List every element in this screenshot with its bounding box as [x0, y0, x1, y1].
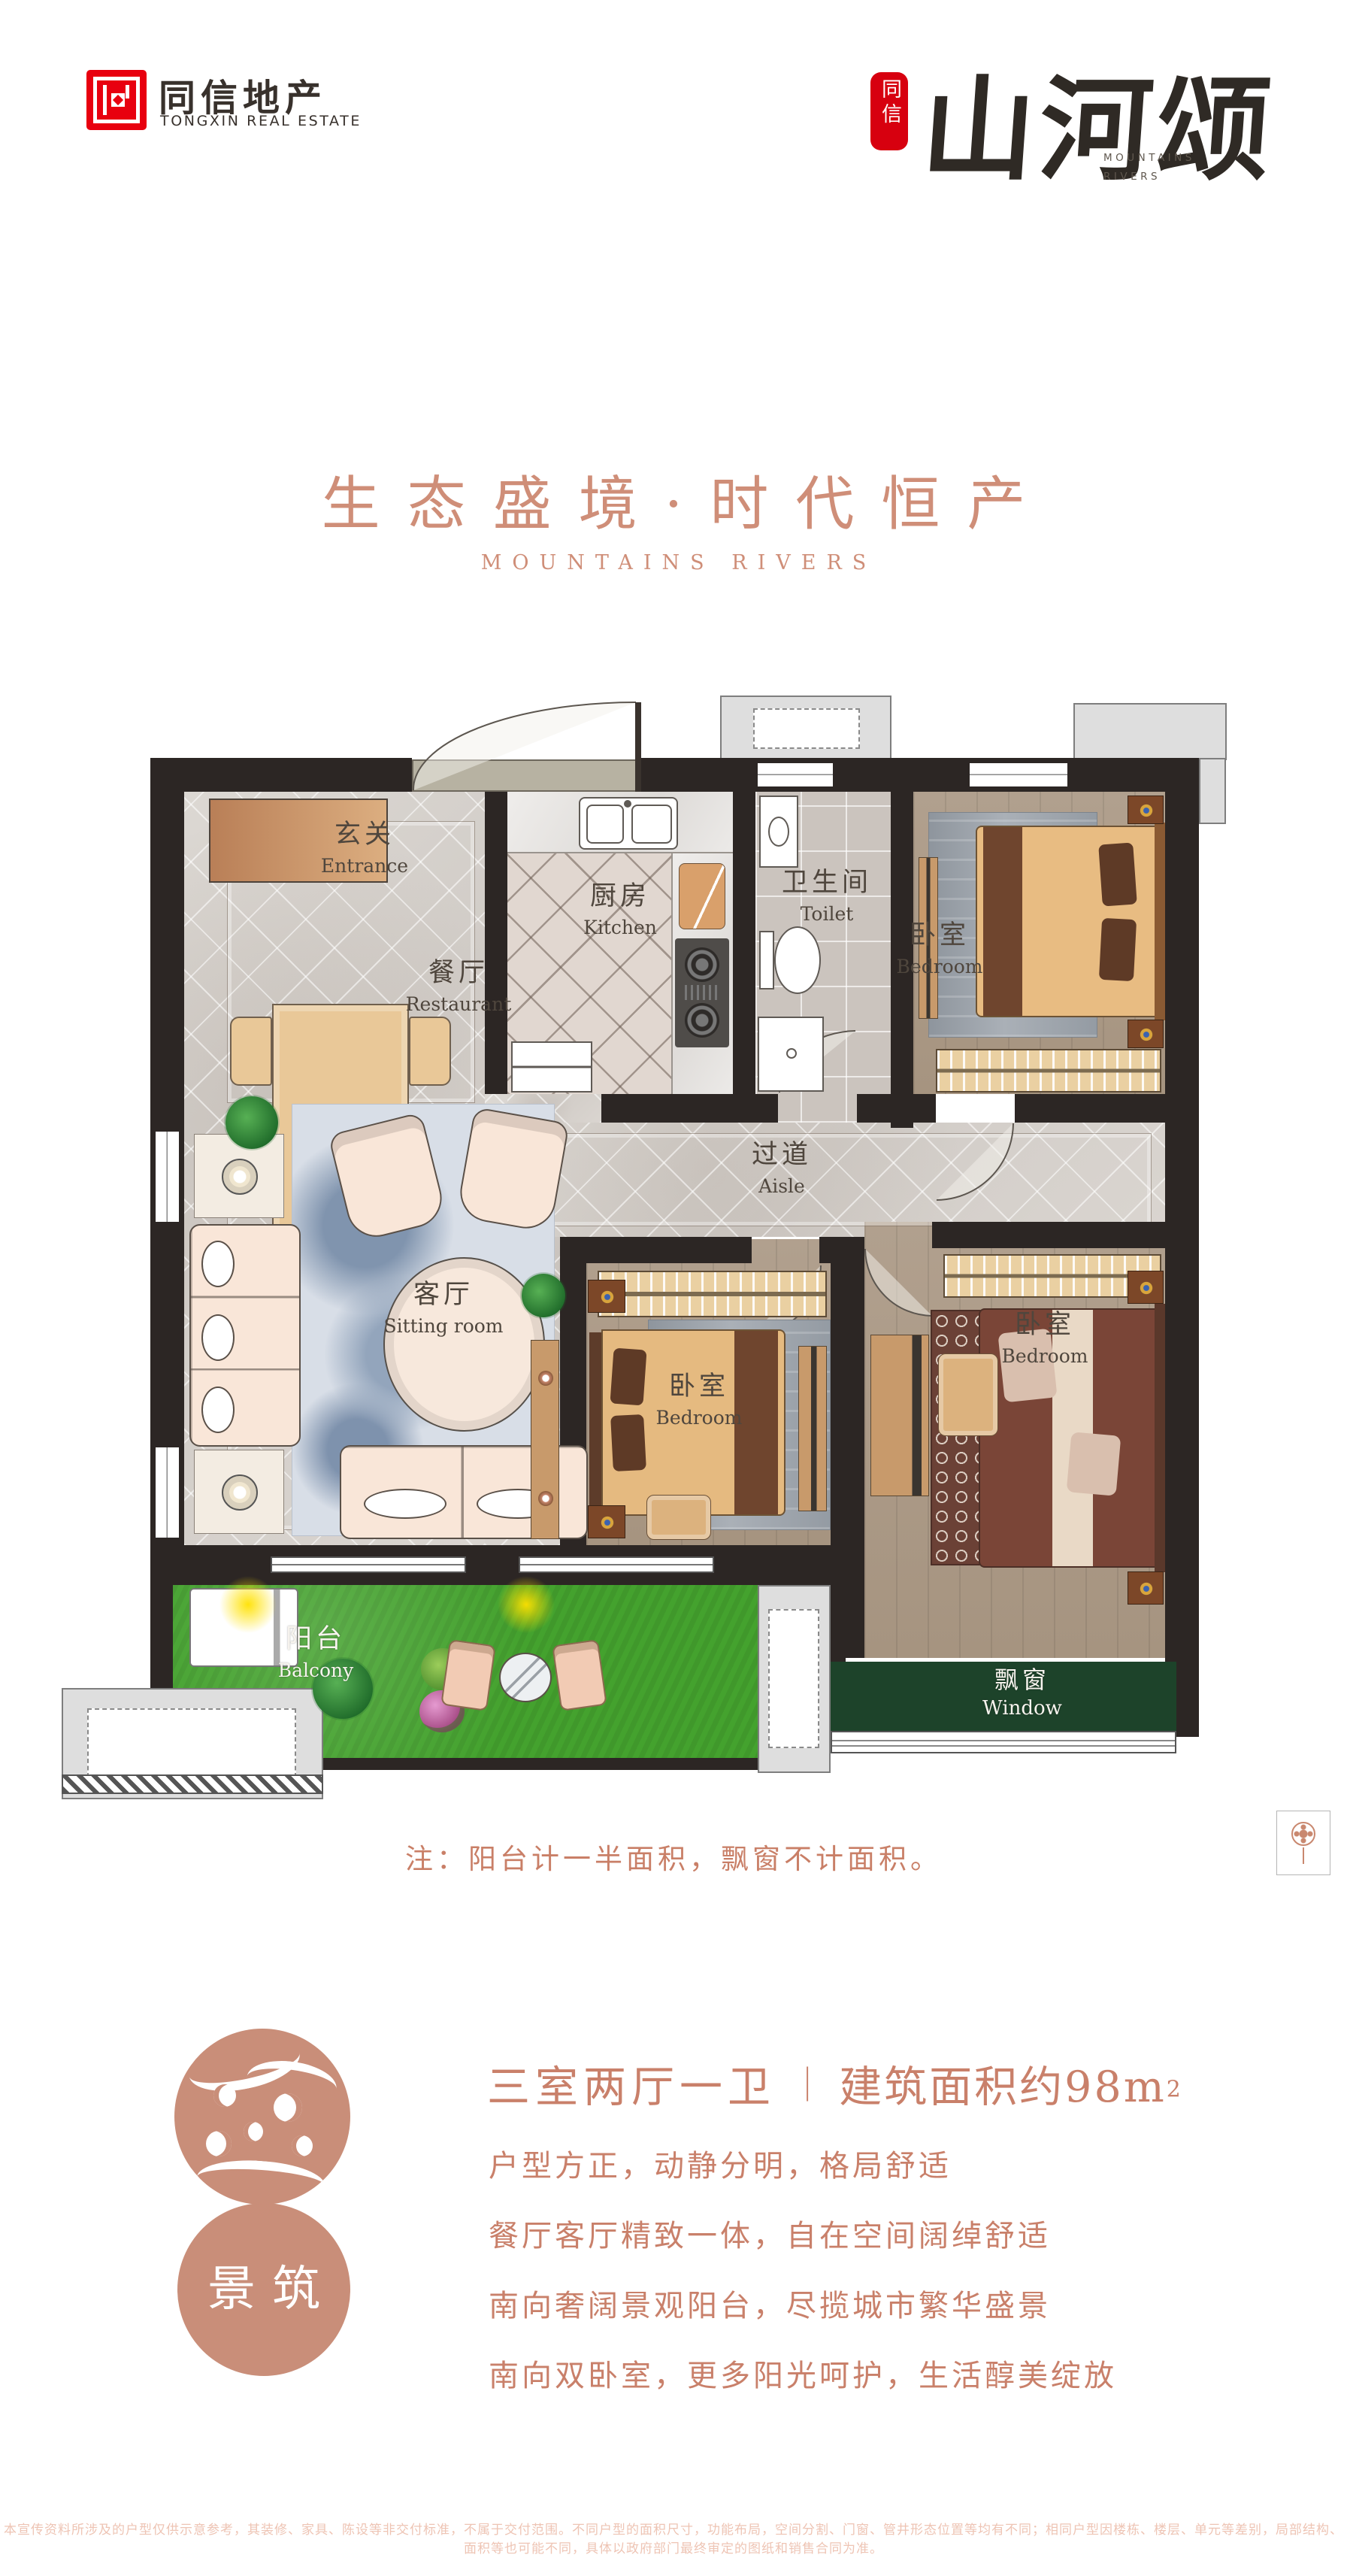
sofa-pillow	[201, 1314, 235, 1361]
wall-toilet-bottom-a	[755, 1094, 778, 1123]
stool-bedroom-mid	[646, 1495, 711, 1540]
plan-note: 注：阳台计一半面积，飘窗不计面积。	[0, 1836, 1347, 1877]
disclaimer: 本宣传资料所涉及的户型仅供示意参考，其装修、家具、陈设等非交付标准，不属于交付范…	[0, 2519, 1347, 2556]
bay-window-sill	[831, 1731, 1176, 1753]
lamp-table	[194, 1134, 284, 1218]
label-restaurant: 餐厅 Restaurant	[380, 956, 537, 1017]
wall-midbed-top-b	[819, 1237, 831, 1263]
cloud-dot	[206, 2131, 232, 2156]
sofa-three-seat	[189, 1224, 301, 1447]
kitchen-sink	[579, 797, 678, 850]
cloud-dot	[292, 2135, 313, 2156]
label-bedroom-right: 卧室 Bedroom	[962, 1308, 1128, 1368]
slider-door-2	[519, 1556, 714, 1573]
floor-plan: 玄关 Entrance 餐厅 Restaurant 厨房 Kitchen 卫生间…	[0, 0, 1347, 1880]
label-bay-window: 飘窗 Window	[925, 1665, 1120, 1721]
window-living-2	[150, 1447, 184, 1538]
nightstand-lamp	[601, 1290, 614, 1304]
sofa-pillow	[201, 1241, 235, 1287]
nightstand	[1128, 1020, 1164, 1048]
wall-rightbed-top	[932, 1222, 1165, 1248]
wall-bedroomtop-bottom-a	[913, 1094, 936, 1123]
nightstand-lamp	[1140, 1028, 1153, 1041]
platform-hatch	[62, 1774, 323, 1794]
dining-chair	[230, 1017, 272, 1086]
stove-grill	[685, 985, 719, 1000]
bed-right-pillow	[1067, 1432, 1121, 1496]
label-aisle: 过道 Aisle	[703, 1138, 861, 1199]
description-line: 南向双卧室，更多阳光呵护，生活醇美绽放	[489, 2351, 1117, 2382]
description-line: 南向奢阔景观阳台，尽揽城市繁华盛景	[489, 2281, 1117, 2312]
headline-area: 建筑面积约98m	[839, 2062, 1167, 2112]
dining-chair	[409, 1017, 451, 1086]
nightstand-lamp	[1140, 804, 1153, 817]
tv-board-bedroom-mid	[798, 1346, 827, 1511]
ac-platform-top-inner	[753, 708, 860, 749]
plant	[522, 1274, 565, 1317]
poster-page: { "brand": { "left": { "name": "同信地产", "…	[0, 0, 1347, 2576]
burner-1	[685, 947, 719, 982]
label-kitchen: 厨房 Kitchen	[541, 880, 699, 940]
label-entrance: 玄关 Entrance	[286, 818, 443, 878]
lamp-table	[194, 1450, 284, 1534]
lamp-icon	[222, 1159, 258, 1195]
tv-console-living	[531, 1340, 559, 1539]
description-line: 户型方正，动静分明，格局舒适	[489, 2141, 1117, 2172]
tv-console-bedroom-right	[870, 1335, 929, 1496]
sink-faucet	[624, 800, 631, 808]
wardrobe-bedroom-top	[936, 1049, 1161, 1093]
nightstand	[1128, 796, 1164, 824]
sink-basin-right	[631, 805, 672, 844]
bed-right-headboard	[1155, 1304, 1165, 1572]
wall-left-b	[150, 1222, 184, 1447]
nightstand	[1128, 1271, 1164, 1304]
headline: 三室两厅一卫 ｜ 建筑面积约98m2	[487, 2053, 1181, 2114]
description-line: 餐厅客厅精致一体，自在空间阔绰舒适	[489, 2211, 1117, 2242]
door-arc-bedroom-right	[864, 1248, 933, 1317]
label-toilet: 卫生间 Toilet	[752, 866, 902, 926]
bed-top-pillow	[1098, 842, 1137, 906]
cloud-emblem-icon	[174, 2029, 350, 2205]
cloud-dot	[213, 2084, 236, 2107]
stove	[675, 938, 729, 1047]
wall-kitchen-right	[733, 792, 755, 1094]
wall-toilet-bottom-b	[857, 1094, 913, 1123]
ac-platform-topright	[1073, 703, 1227, 760]
toilet-basin	[759, 796, 798, 868]
wall-top-b	[637, 758, 758, 792]
headline-rooms: 三室两厅一卫	[487, 2062, 776, 2112]
wc-tank	[759, 931, 774, 989]
wall-bedroomtop-bottom-b	[1015, 1094, 1165, 1123]
bed-mid-headboard	[589, 1332, 601, 1513]
sofa-pillow	[201, 1386, 235, 1433]
balcony-light	[498, 1576, 555, 1633]
balcony-table	[499, 1653, 552, 1702]
window-living-1	[150, 1132, 184, 1222]
nightstand-lamp	[601, 1516, 614, 1529]
console-ornament	[538, 1491, 553, 1506]
burner-2	[685, 1003, 719, 1038]
stamp-circle: 景筑	[177, 2203, 350, 2376]
wardrobe-bedroom-mid	[598, 1271, 827, 1317]
wc-bowl	[774, 926, 821, 994]
cloud-swirl	[195, 2156, 325, 2205]
ledge-right	[1199, 758, 1226, 824]
nightstand	[588, 1280, 625, 1313]
nightstand-lamp	[1140, 1582, 1153, 1596]
basin-bowl	[768, 817, 789, 847]
label-balcony: 阳台 Balcony	[233, 1623, 398, 1683]
window-toilet	[758, 758, 833, 792]
nightstand	[1128, 1571, 1164, 1605]
cloud-dot	[244, 2122, 263, 2141]
label-bedroom-top: 卧室 Bedroom	[864, 919, 1015, 979]
stamp-text: 景筑	[191, 2262, 337, 2317]
balcony-chair	[552, 1639, 607, 1711]
wall-midbed-top-a	[586, 1237, 752, 1263]
description-lines: 户型方正，动静分明，格局舒适 餐厅客厅精致一体，自在空间阔绰舒适 南向奢阔景观阳…	[489, 2141, 1117, 2382]
plant	[226, 1096, 278, 1149]
wall-kitchen-bottom	[601, 1094, 755, 1123]
shower-drain	[786, 1048, 797, 1059]
shower	[758, 1017, 824, 1092]
sofa-pillow	[364, 1489, 446, 1519]
lamp-icon	[222, 1474, 258, 1511]
nightstand	[588, 1505, 625, 1538]
platform-bottom-left-inner	[87, 1708, 296, 1777]
ac-platform-bottom-inner	[768, 1609, 819, 1748]
wall-left-a	[150, 758, 184, 1132]
label-sitting: 客厅 Sitting room	[361, 1278, 526, 1338]
wall-top-a	[150, 758, 412, 792]
door-arc-entrance	[412, 701, 637, 792]
wall-top-c	[833, 758, 970, 792]
cloud-dot	[274, 2093, 302, 2122]
details-section: 景筑 三室两厅一卫 ｜ 建筑面积约98m2 户型方正，动静分明，格局舒适 餐厅客…	[0, 1993, 1347, 2444]
fridge	[511, 1041, 592, 1093]
bed-top-pillow	[1099, 918, 1137, 981]
wall-midbed-right	[831, 1237, 864, 1658]
headline-divider: ｜	[779, 2065, 835, 2105]
door-leaf-entrance	[635, 702, 641, 792]
sink-basin-left	[586, 805, 624, 844]
door-arc-bedroom-top	[936, 1123, 1014, 1201]
label-bedroom-mid: 卧室 Bedroom	[616, 1370, 782, 1430]
headline-area-sup: 2	[1167, 2077, 1181, 2103]
nightstand-lamp	[1140, 1281, 1153, 1295]
slider-door-1	[271, 1556, 466, 1573]
balcony-chair	[440, 1639, 496, 1711]
window-bedroom-top	[970, 758, 1067, 792]
bed-top-headboard	[1155, 823, 1165, 1020]
wall-right	[1165, 758, 1199, 1737]
wall-kitchen-left	[485, 792, 507, 1094]
console-ornament	[538, 1371, 553, 1386]
